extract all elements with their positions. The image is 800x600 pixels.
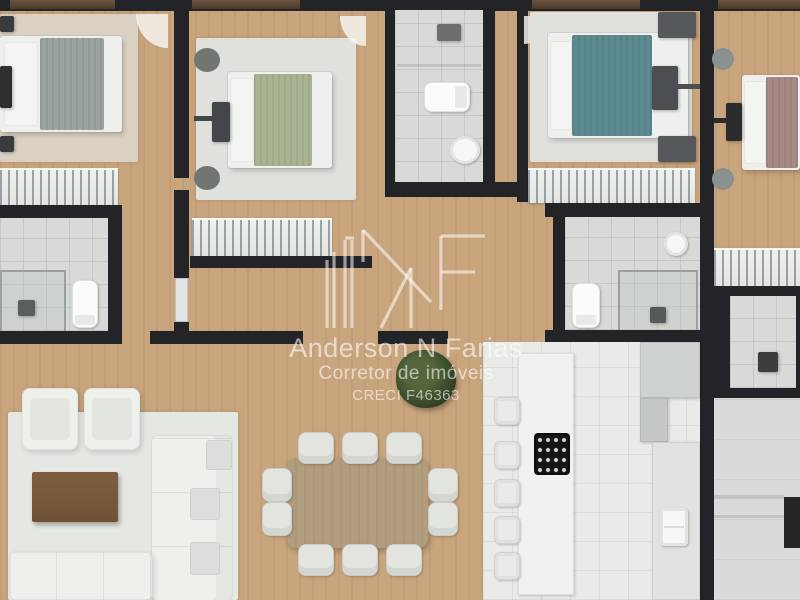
kitchen-stool <box>494 552 520 580</box>
kitchen-stool <box>494 479 520 507</box>
bedroom4-pouf <box>712 48 734 70</box>
bedroom2-tv-panel <box>212 102 230 142</box>
dining-chair <box>262 468 292 502</box>
bedroom3-corner-chair <box>658 136 696 162</box>
kitchen-cooktop <box>536 435 568 473</box>
sofa-section <box>10 552 152 600</box>
bathroom2-shower <box>0 270 66 335</box>
dining-chair <box>342 432 378 464</box>
bedroom2-bed <box>228 72 332 168</box>
bedroom1-bed <box>0 36 122 132</box>
sink-divider <box>664 526 684 528</box>
bathroom1-toilet <box>424 82 470 112</box>
hallway-door <box>175 278 188 322</box>
armchair-seat <box>92 398 132 440</box>
window <box>532 0 640 9</box>
bedroom4-bathroom-floor <box>730 296 796 388</box>
bedroom3-wardrobe <box>528 168 695 203</box>
apartment-floor-plan: Anderson N Farias Corretor de imóveis CR… <box>0 0 800 600</box>
bedroom4-pillow <box>744 81 766 164</box>
service-counter-edge <box>714 495 784 499</box>
bedroom1-nightstand <box>0 16 14 32</box>
bedroom2-pillow <box>230 78 254 162</box>
kitchen-stool <box>494 441 520 469</box>
window <box>192 0 300 9</box>
bedroom4-blanket <box>766 77 798 168</box>
wall <box>174 190 189 278</box>
bathroom1-shower-divider <box>397 64 481 67</box>
dining-chair <box>386 432 422 464</box>
bathroom1-shower-mat <box>437 24 461 41</box>
watermark-name: Anderson N Farias <box>248 334 564 362</box>
kitchen-stool <box>494 516 520 544</box>
dining-chair <box>386 544 422 576</box>
bedroom1-duvet <box>40 38 104 130</box>
dining-table <box>286 458 428 548</box>
wall <box>545 203 700 217</box>
bedroom4-pouf <box>712 168 734 190</box>
window <box>10 0 115 9</box>
armchair <box>22 388 78 450</box>
kitchen-counter <box>640 342 700 398</box>
bedroom1-nightstand <box>0 136 14 152</box>
sofa-cushion <box>206 440 232 470</box>
window <box>718 0 800 9</box>
bedroom3-corner-chair <box>658 12 696 38</box>
bathroom3-toilet <box>572 283 600 328</box>
toilet-tank <box>576 315 596 325</box>
toilet-tank <box>75 315 95 325</box>
bedroom2-pouf <box>194 166 220 190</box>
bedroom1-door-swing <box>136 14 168 48</box>
kitchen-sink <box>660 508 688 546</box>
bedroom2-blanket <box>254 74 312 166</box>
bedroom1-tv <box>0 66 12 108</box>
wall <box>0 331 122 344</box>
watermark-license: CRECI F46363 <box>248 386 564 406</box>
dining-chair <box>298 432 334 464</box>
dining-chair <box>428 468 458 502</box>
toilet-tank <box>455 86 467 108</box>
bedroom1-wardrobe <box>0 168 118 205</box>
bedroom2-pouf <box>194 48 220 72</box>
bedroom3-pillow <box>550 41 572 130</box>
shower-drain <box>18 300 35 316</box>
wall <box>481 10 495 196</box>
bedroom3-tv-mount <box>678 84 700 89</box>
bedroom2-tv-mount <box>194 116 212 121</box>
sofa-cushion <box>190 542 220 575</box>
dining-chair <box>428 502 458 536</box>
anf-monogram-icon <box>321 222 491 334</box>
dining-chair <box>298 544 334 576</box>
wall <box>700 0 714 600</box>
coffee-table <box>32 472 118 522</box>
bathroom3-shower <box>618 270 698 334</box>
bedroom4-tv-panel <box>726 103 742 141</box>
bathroom2-toilet <box>72 280 98 328</box>
wall <box>0 205 122 218</box>
bedroom3-tv-panel <box>652 66 678 110</box>
armchair-seat <box>30 398 70 440</box>
bathroom3-sink <box>664 232 688 256</box>
shower-drain <box>650 307 666 323</box>
dining-chair <box>342 544 378 576</box>
bedroom4-bed <box>742 75 800 170</box>
shower-drain <box>758 352 778 372</box>
service-counter-edge <box>714 515 784 518</box>
bedroom4-wardrobe <box>714 248 800 286</box>
watermark: Anderson N Farias Corretor de imóveis CR… <box>248 222 564 406</box>
bedroom3-blanket <box>572 35 652 136</box>
bedroom4-tv-mount <box>714 118 726 123</box>
armchair <box>84 388 140 450</box>
dining-chair <box>262 502 292 536</box>
wall <box>174 10 189 178</box>
bathroom1-sink <box>450 136 480 164</box>
kitchen-counter <box>640 398 668 442</box>
watermark-profession: Corretor de imóveis <box>248 362 564 386</box>
wall <box>108 205 122 344</box>
service-appliance <box>784 497 800 548</box>
sofa-cushion <box>190 488 220 520</box>
